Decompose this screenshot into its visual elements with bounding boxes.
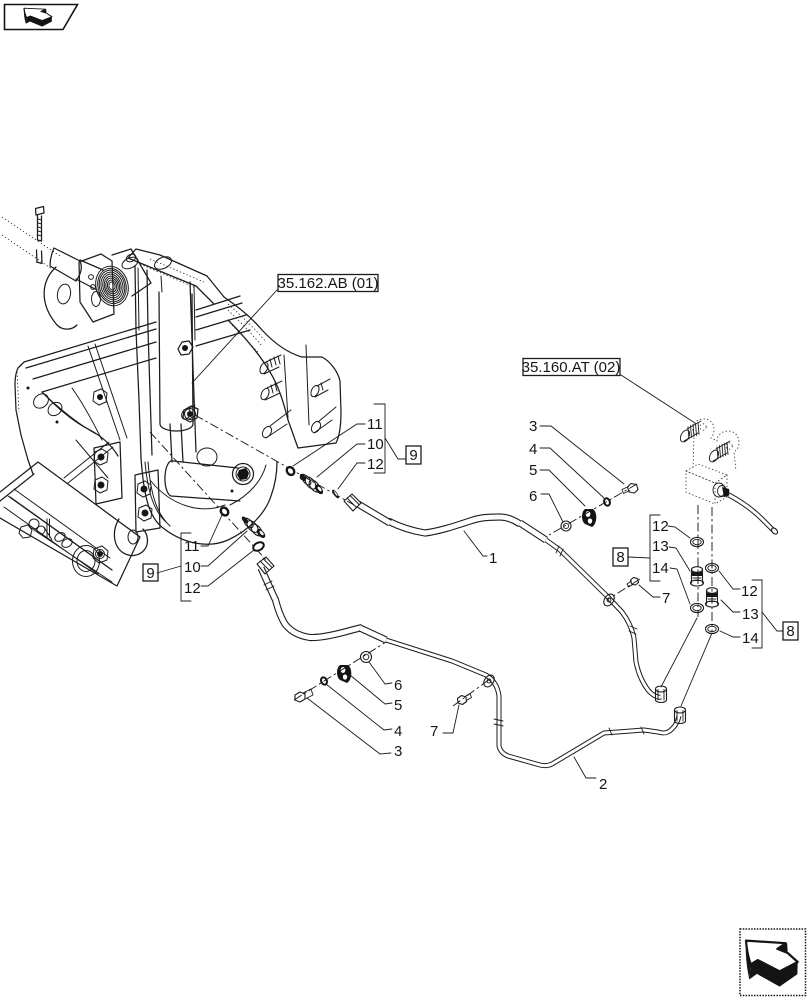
- svg-text:3: 3: [529, 418, 537, 435]
- svg-text:8: 8: [616, 549, 624, 566]
- svg-text:5: 5: [529, 462, 537, 479]
- svg-text:3: 3: [394, 743, 402, 760]
- svg-text:35.162.AB (01): 35.162.AB (01): [278, 275, 379, 292]
- svg-text:12: 12: [367, 456, 384, 473]
- svg-text:7: 7: [430, 723, 438, 740]
- svg-text:10: 10: [184, 559, 201, 576]
- svg-text:10: 10: [367, 436, 384, 453]
- svg-text:35.160.AT (02): 35.160.AT (02): [522, 359, 621, 376]
- svg-text:4: 4: [394, 723, 402, 740]
- svg-text:14: 14: [652, 560, 669, 577]
- svg-text:7: 7: [662, 590, 670, 607]
- svg-text:12: 12: [741, 583, 758, 600]
- svg-text:13: 13: [652, 538, 669, 555]
- svg-text:6: 6: [394, 677, 402, 694]
- svg-text:12: 12: [184, 580, 201, 597]
- svg-text:5: 5: [394, 697, 402, 714]
- svg-text:1: 1: [489, 550, 497, 567]
- svg-text:11: 11: [367, 416, 383, 433]
- svg-text:14: 14: [742, 630, 759, 647]
- svg-text:9: 9: [409, 447, 417, 464]
- svg-text:6: 6: [529, 488, 537, 505]
- svg-text:11: 11: [184, 538, 200, 555]
- svg-text:12: 12: [652, 518, 669, 535]
- svg-text:13: 13: [742, 606, 759, 623]
- svg-text:9: 9: [146, 565, 154, 582]
- svg-text:4: 4: [529, 441, 537, 458]
- svg-text:2: 2: [599, 776, 607, 793]
- svg-text:8: 8: [786, 623, 794, 640]
